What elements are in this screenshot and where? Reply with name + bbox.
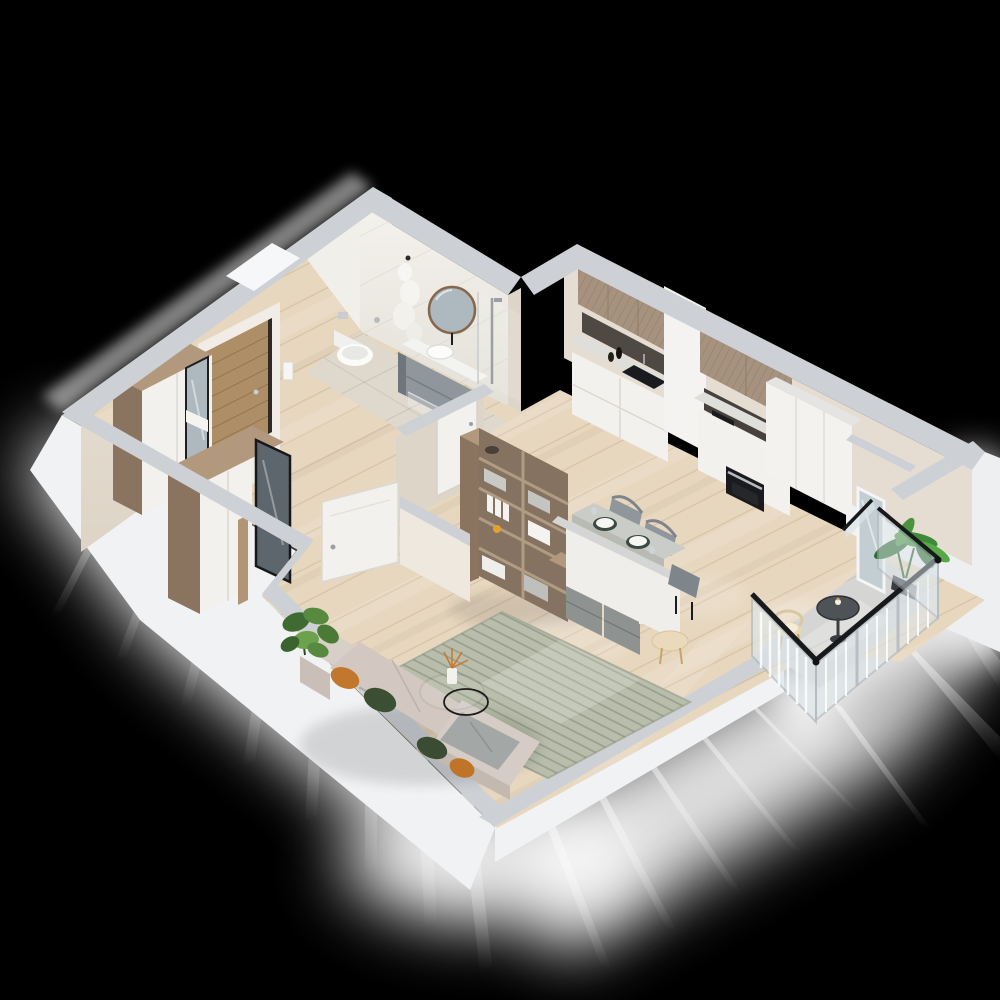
wardrobe2-wood-handle — [238, 515, 248, 605]
floorplan-svg — [0, 0, 1000, 1000]
round-mirror — [429, 287, 475, 333]
fruit — [493, 525, 501, 533]
glass — [591, 507, 597, 515]
door-frame-dark — [268, 318, 272, 434]
railing-post — [813, 659, 820, 666]
bottle — [616, 347, 622, 359]
plate — [629, 536, 647, 546]
open-door-handle — [331, 545, 336, 550]
bottle — [608, 352, 614, 362]
flush-plate — [338, 312, 348, 319]
intercom — [283, 362, 293, 380]
plate — [596, 518, 614, 528]
apartment-render — [0, 0, 1000, 1000]
candle-flame — [837, 598, 840, 601]
vase — [447, 668, 457, 684]
shower-head — [494, 298, 502, 302]
entrance-door-handle — [254, 390, 259, 395]
vessel-sink — [427, 345, 453, 359]
door-handle — [469, 422, 473, 426]
decor-bowl — [485, 446, 499, 454]
railing-post — [935, 557, 942, 564]
vanity-side — [398, 352, 406, 396]
toilet-paper-holder — [374, 317, 380, 323]
glass — [649, 546, 655, 554]
